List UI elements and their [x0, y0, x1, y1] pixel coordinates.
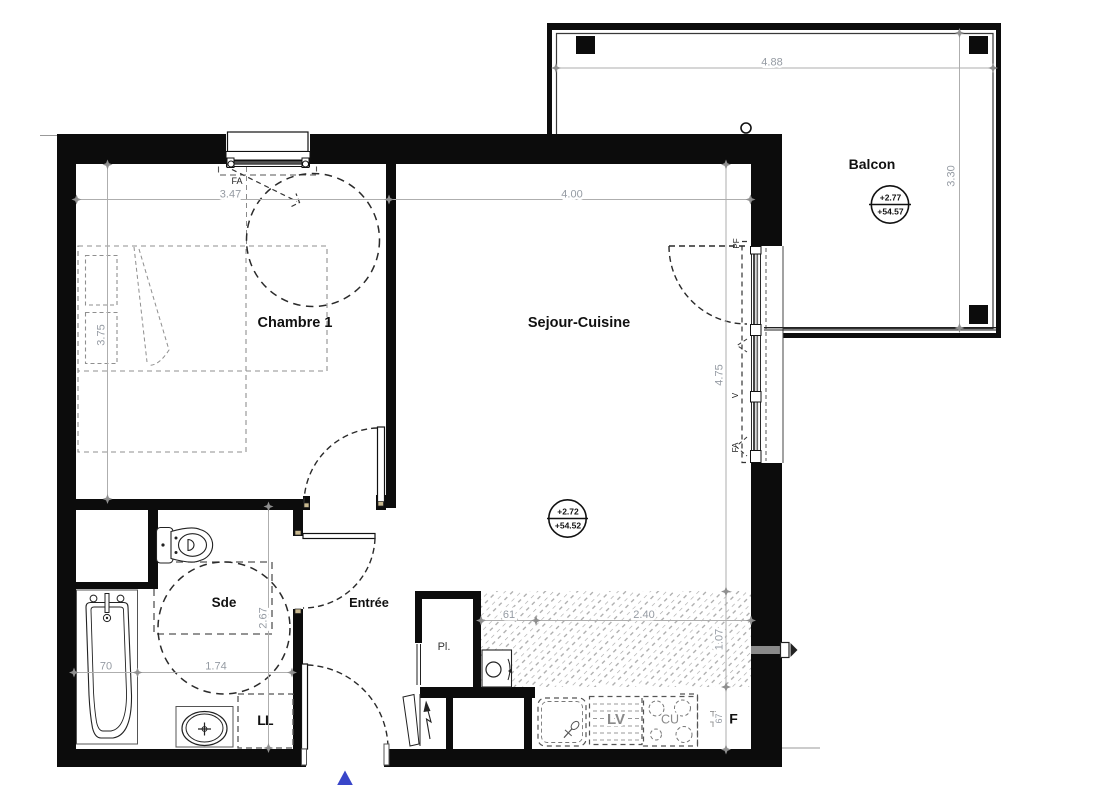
svg-text:Pl.: Pl. [438, 641, 451, 653]
svg-text:+2.72: +2.72 [557, 507, 579, 517]
svg-text:Sde: Sde [212, 595, 237, 610]
svg-text:+2.77: +2.77 [880, 193, 902, 203]
svg-text:67: 67 [714, 713, 724, 723]
svg-text:+54.57: +54.57 [877, 207, 904, 217]
svg-text:FA: FA [231, 176, 242, 186]
svg-text:+54.52: +54.52 [555, 521, 582, 531]
svg-text:F: F [729, 711, 738, 727]
svg-text:PF: PF [732, 238, 741, 248]
svg-text:Balcon: Balcon [849, 156, 896, 172]
svg-text:Entrée: Entrée [349, 595, 389, 610]
svg-text:2.40: 2.40 [633, 609, 654, 621]
svg-text:1.07: 1.07 [714, 629, 726, 650]
svg-text:4.88: 4.88 [761, 57, 782, 69]
svg-text:LL: LL [257, 712, 274, 728]
svg-text:V: V [731, 392, 740, 398]
svg-text:3.47: 3.47 [220, 189, 241, 201]
svg-text:4.00: 4.00 [561, 189, 582, 201]
svg-text:61: 61 [503, 609, 515, 621]
svg-text:2.67: 2.67 [258, 607, 270, 628]
svg-text:CU: CU [661, 713, 679, 727]
svg-text:Chambre 1: Chambre 1 [258, 315, 333, 331]
svg-text:4.75: 4.75 [714, 364, 726, 385]
svg-text:1.74: 1.74 [205, 661, 226, 673]
svg-text:70: 70 [100, 661, 112, 673]
svg-text:3.30: 3.30 [946, 165, 958, 186]
svg-text:FA: FA [731, 442, 740, 452]
svg-text:Sejour-Cuisine: Sejour-Cuisine [528, 315, 630, 331]
svg-text:LV: LV [607, 711, 625, 728]
svg-text:3.75: 3.75 [96, 324, 108, 345]
